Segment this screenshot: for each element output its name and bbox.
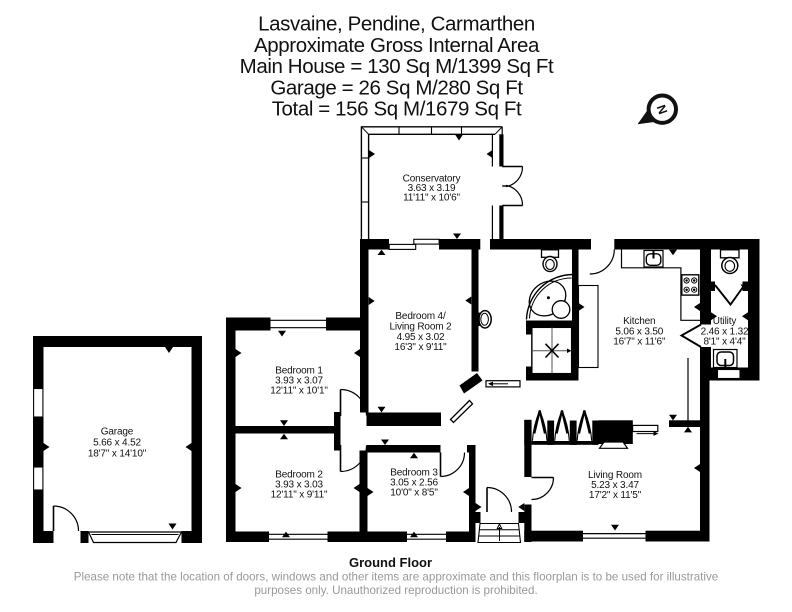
svg-text:16'7" x 11'6": 16'7" x 11'6" [613, 337, 666, 348]
svg-text:Garage = 26 Sq M/280 Sq Ft: Garage = 26 Sq M/280 Sq Ft [270, 77, 523, 100]
svg-text:8'1" x 4'4": 8'1" x 4'4" [703, 337, 746, 348]
svg-text:16'3" x 9'11": 16'3" x 9'11" [394, 342, 447, 353]
svg-text:Approximate Gross Internal Are: Approximate Gross Internal Area [254, 34, 540, 57]
svg-text:Lasvaine, Pendine, Carmarthen: Lasvaine, Pendine, Carmarthen [258, 13, 535, 36]
svg-text:Garage: Garage [101, 426, 134, 437]
svg-text:purposes only. Unauthorized re: purposes only. Unauthorized reproduction… [254, 584, 537, 597]
svg-text:Total = 156 Sq M/1679 Sq Ft: Total = 156 Sq M/1679 Sq Ft [272, 98, 522, 121]
svg-text:N: N [654, 103, 670, 116]
svg-text:10'0" x 8'5": 10'0" x 8'5" [390, 488, 438, 499]
svg-text:17'2" x 11'5": 17'2" x 11'5" [589, 490, 642, 501]
svg-text:5.66 x 4.52: 5.66 x 4.52 [93, 438, 141, 449]
svg-text:12'11" x 10'1": 12'11" x 10'1" [270, 386, 328, 397]
svg-text:Ground Floor: Ground Floor [349, 555, 432, 570]
svg-text:12'11" x 9'11": 12'11" x 9'11" [271, 490, 328, 501]
svg-text:Main House = 130 Sq M/1399 Sq: Main House = 130 Sq M/1399 Sq Ft [240, 55, 554, 78]
svg-text:11'11" x 10'6": 11'11" x 10'6" [403, 193, 460, 204]
svg-text:18'7" x 14'10": 18'7" x 14'10" [88, 449, 147, 460]
svg-text:Please note that the location: Please note that the location of doors, … [74, 571, 718, 584]
